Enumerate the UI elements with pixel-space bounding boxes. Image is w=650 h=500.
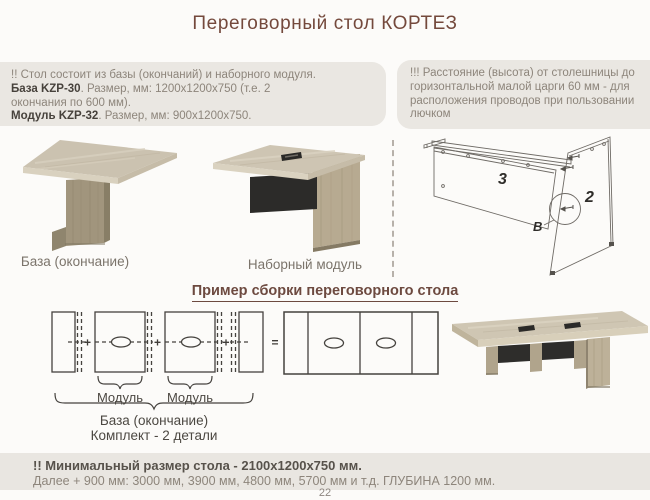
- plus-sign-2: +: [154, 336, 161, 350]
- schematic-result-hatch-2: [377, 338, 396, 348]
- base-kit-brace: [55, 393, 253, 409]
- assembled-table-image: [448, 306, 650, 398]
- info-left-line1: !! Стол состоит из базы (окончаний) и на…: [11, 69, 376, 83]
- panel-2-part: [550, 137, 613, 275]
- info-left-line3: окончания по 600 мм).: [11, 97, 376, 111]
- info-left-line2: База KZP-30. Размер, мм: 1200х1200х750 (…: [11, 83, 376, 97]
- module-table-label: Наборный модуль: [235, 257, 375, 272]
- table-side-panel: [588, 337, 610, 388]
- equals-sign: =: [271, 336, 278, 350]
- base-table-image: [15, 136, 185, 258]
- info-box-right: !!! Расстояние (высота) от столешницы до…: [397, 60, 650, 129]
- table-side-panel-edge: [586, 339, 588, 389]
- catalog-page: Переговорный стол КОРТЕЗ !! Стол состоит…: [0, 0, 650, 500]
- module-brace-label-2: Модуль: [167, 390, 213, 405]
- footer-note: !! Минимальный размер стола - 2100х1200х…: [0, 453, 650, 490]
- schematic-base-end-right: [239, 312, 263, 372]
- page-title: Переговорный стол КОРТЕЗ: [0, 13, 650, 35]
- diagram-label-3: 3: [498, 171, 507, 188]
- page-number: 22: [0, 487, 650, 499]
- assembly-schematic: + + + = Модуль Модуль База (окончание) К…: [30, 305, 450, 445]
- info-box-left: !! Стол состоит из базы (окончаний) и на…: [0, 62, 386, 126]
- info-left-line4: Модуль KZP-32. Размер, мм: 900х1200х750.: [11, 110, 376, 124]
- example-section-heading: Пример сборки переговорного стола: [0, 282, 650, 302]
- plus-sign-1: +: [84, 336, 91, 350]
- module-table-image: [205, 140, 385, 262]
- diagram-label-2: 2: [584, 189, 594, 206]
- module-brace-label-1: Модуль: [97, 390, 143, 405]
- schematic-hatch-2: [182, 337, 201, 347]
- section-divider: [392, 140, 394, 277]
- base-pedestal-edge: [104, 177, 110, 243]
- assembly-diagram: 3 2 B: [405, 132, 650, 290]
- info-right-text: !!! Расстояние (высота) от столешницы до…: [410, 67, 635, 120]
- table-leg-3: [574, 340, 586, 369]
- schematic-result-table: [284, 312, 438, 374]
- diagram-label-b: B: [533, 219, 542, 234]
- table-recess-panel-1: [498, 344, 530, 363]
- plus-sign-3: +: [222, 336, 229, 350]
- footer-line1: !! Минимальный размер стола - 2100х1200х…: [33, 458, 650, 474]
- base-kit-label: База (окончание): [100, 413, 208, 428]
- kit-count-label: Комплект - 2 детали: [91, 428, 218, 443]
- module-brace-1: [98, 376, 142, 389]
- table-leg-2: [530, 343, 542, 372]
- base-table-label: База (окончание): [15, 254, 135, 269]
- module-brace-2: [168, 376, 212, 389]
- schematic-result-hatch-1: [325, 338, 344, 348]
- table-leg-1: [486, 346, 498, 375]
- base-pedestal-wing: [52, 227, 66, 251]
- table-recess-panel-2: [542, 341, 574, 360]
- schematic-hatch-1: [112, 337, 131, 347]
